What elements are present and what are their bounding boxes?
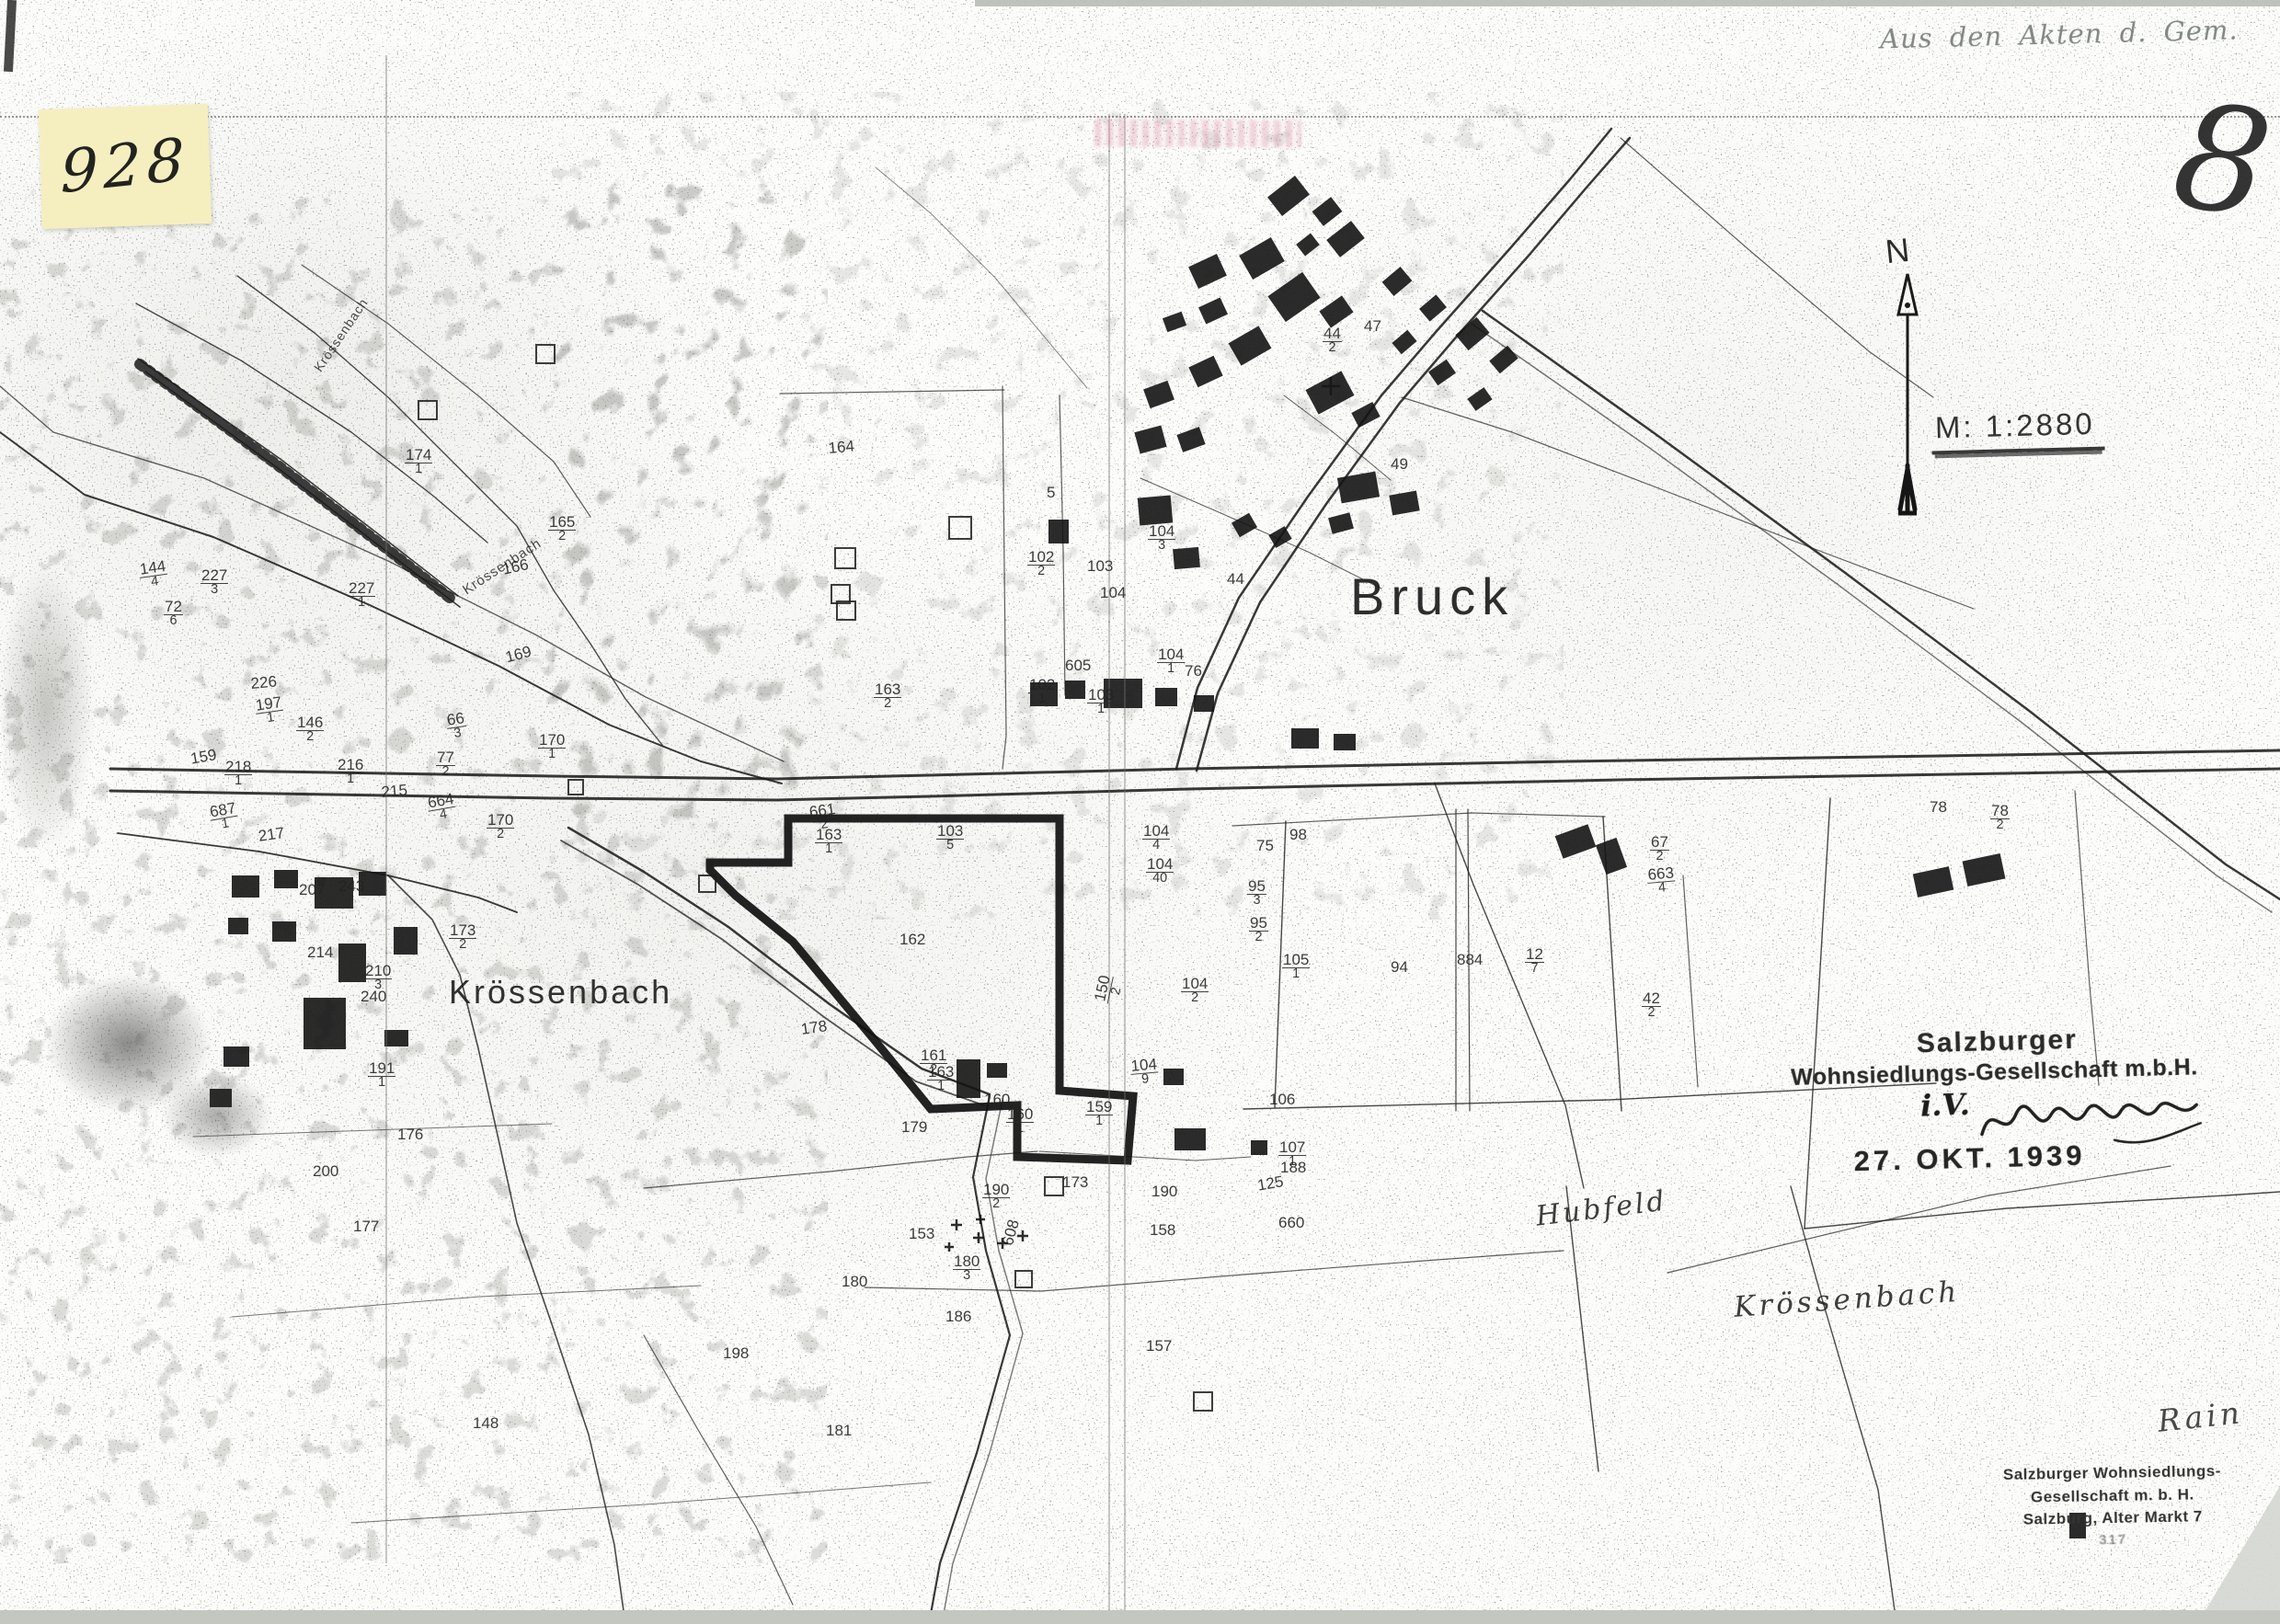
parcel-number: 1652 — [548, 515, 576, 543]
building-footprint — [274, 870, 298, 888]
parcel-number: 5 — [1047, 486, 1055, 500]
building-footprint — [1163, 1069, 1184, 1085]
parcel-number: 190 — [1151, 1184, 1177, 1199]
parcel-number: 1042 — [1181, 977, 1209, 1004]
place-label-kroessenbach-village: Krössenbach — [449, 973, 672, 1012]
building-footprint — [1155, 688, 1177, 706]
parcel-number: 1631 — [927, 1065, 955, 1092]
parcel-number: 215 — [381, 783, 408, 800]
parcel-number: 1702 — [487, 813, 514, 841]
parcel-number: 1803 — [953, 1254, 980, 1282]
parcel-number: 181 — [826, 1424, 852, 1438]
parcel-number: 6634 — [1646, 865, 1677, 895]
address-stamp: Salzburger Wohnsiedlungs- Gesellschaft m… — [1988, 1460, 2238, 1552]
parcel-number: 75 — [1256, 839, 1274, 853]
parcel-number: 422 — [1642, 991, 1661, 1019]
parcel-number: 1911 — [368, 1061, 395, 1089]
parcel-number: 1601 — [1006, 1107, 1034, 1135]
parcel-number: 10440 — [1146, 857, 1174, 885]
parcel-number: 1049 — [1129, 1057, 1160, 1086]
building-footprint — [1174, 1128, 1206, 1150]
parcel-number: 188 — [1280, 1161, 1306, 1175]
scanner-edge-strip-top — [975, 0, 2280, 6]
parcel-number: 1044 — [1142, 824, 1170, 852]
parcel-number: 47 — [1364, 319, 1381, 334]
parcel-number: 106 — [1269, 1092, 1295, 1107]
parcel-number: 103 — [1087, 559, 1113, 574]
parcel-number: 176 — [397, 1127, 423, 1142]
building-footprint — [1138, 495, 1173, 525]
parcel-number: 1741 — [405, 448, 432, 475]
parcel-number: 180 — [842, 1275, 867, 1289]
parcel-number: 1632 — [874, 682, 901, 710]
parcel-number: 104 — [1100, 586, 1126, 600]
parcel-number: 127 — [1525, 947, 1544, 975]
photocopy-smudge — [0, 515, 110, 901]
company-stamp: Salzburger Wohnsiedlungs-Gesellschaft m.… — [1790, 1021, 2207, 1180]
north-arrow-icon — [1876, 272, 1941, 539]
parcel-number: 94 — [1391, 960, 1408, 975]
scanner-edge-strip-bottom — [0, 1610, 2280, 1624]
parcel-number: 1022 — [1027, 550, 1055, 578]
parcel-number: 884 — [1457, 953, 1483, 967]
parcel-number: 1971 — [254, 695, 285, 726]
sticky-note: 928 — [39, 104, 212, 229]
parcel-number: 125 — [1256, 1174, 1285, 1193]
parcel-number: 952 — [1249, 916, 1268, 944]
parcel-number: 1444 — [138, 559, 169, 590]
parcel-number: 49 — [1391, 457, 1408, 472]
parcel-number: 6871 — [208, 801, 240, 833]
parcel-number: 1031 — [1087, 688, 1115, 715]
parcel-number: 148 — [473, 1416, 498, 1431]
parcel-number: 1732 — [449, 923, 476, 951]
address-stamp-line: Salzburger Wohnsiedlungs- — [1988, 1460, 2236, 1487]
parcel-number: 198 — [723, 1346, 749, 1361]
parcel-number: 78 — [1930, 800, 1947, 815]
map-scale-label: M: 1:2880 — [1931, 406, 2104, 455]
parcel-number: 214 — [307, 945, 333, 960]
paper-fold-line — [385, 55, 387, 1563]
parcel-number: 226 — [250, 675, 278, 692]
parcel-number: 1035 — [936, 824, 964, 852]
parcel-number: 200 — [313, 1164, 338, 1179]
parcel-number: 177 — [353, 1219, 379, 1234]
sticky-note-number: 928 — [61, 126, 189, 208]
parcel-number: 2271 — [348, 581, 375, 609]
building-footprint — [304, 998, 346, 1049]
place-label-bruck: Bruck — [1350, 566, 1514, 626]
parcel-number: 157 — [1146, 1339, 1172, 1354]
parcel-number: 672 — [1650, 835, 1669, 863]
parcel-number: 158 — [1150, 1223, 1175, 1238]
parcel-number: 772 — [436, 750, 455, 778]
parcel-number: 2161 — [337, 758, 364, 785]
parcel-number: 164 — [828, 440, 855, 456]
parcel-number: 217 — [258, 826, 285, 843]
parcel-number: 44 — [1227, 572, 1244, 587]
scan-dotted-fold-line — [0, 116, 2280, 118]
building-footprint — [1251, 1140, 1267, 1155]
parcel-number: 240 — [361, 989, 386, 1004]
paper-fold-line — [1108, 114, 1110, 1613]
parcel-number: 1631 — [815, 828, 842, 855]
parcel-number: 76 — [1185, 664, 1202, 679]
parcel-number: 1701 — [538, 733, 566, 761]
parcel-number: 159 — [189, 748, 218, 766]
parcel-number: 178 — [800, 1019, 828, 1036]
parcel-number: 2273 — [201, 568, 228, 596]
parcel-number: 153 — [909, 1227, 934, 1241]
parcel-number: 605 — [1065, 658, 1091, 673]
building-footprint — [1291, 728, 1319, 749]
parcel-number: 782 — [1990, 804, 2010, 831]
parcel-number: 179 — [901, 1120, 927, 1135]
parcel-number: 726 — [164, 600, 183, 627]
building-footprint — [1173, 547, 1200, 569]
parcel-number: 1043 — [1148, 524, 1175, 552]
parcel-number: 162 — [899, 932, 925, 947]
parcel-number: 660 — [1278, 1216, 1304, 1230]
building-footprint — [232, 875, 259, 898]
building-footprint — [228, 918, 248, 934]
building-footprint — [1194, 695, 1214, 712]
parcel-number: 1462 — [296, 715, 324, 743]
signature-prefix: i.V. — [1920, 1087, 1971, 1123]
building-footprint — [1065, 680, 1085, 699]
building-footprint — [987, 1063, 1007, 1078]
parcel-number: 1591 — [1085, 1100, 1113, 1127]
building-footprint — [1334, 734, 1356, 750]
parcel-number: 663 — [445, 711, 468, 741]
paper-fold-line — [1124, 114, 1126, 1613]
parcel-number: 173 — [1062, 1175, 1088, 1190]
parcel-number: 1902 — [982, 1183, 1010, 1210]
building-footprint — [272, 921, 296, 942]
building-footprint — [1048, 520, 1069, 543]
parcel-number: 1041 — [1157, 647, 1185, 675]
photocopy-smudge — [138, 1056, 294, 1175]
signature-row: i.V. — [1920, 1081, 2207, 1149]
parcel-number: 207 — [299, 883, 325, 898]
faint-pink-stamp — [1094, 119, 1301, 147]
parcel-number: 98 — [1289, 828, 1307, 842]
building-footprint — [394, 927, 418, 955]
parcel-number: 2181 — [224, 760, 252, 787]
parcel-number: 186 — [945, 1309, 971, 1324]
parcel-number: 1502 — [1093, 973, 1126, 1006]
parcel-number: 953 — [1247, 879, 1266, 907]
north-label: N — [1884, 231, 1911, 271]
building-footprint — [957, 1059, 980, 1098]
parcel-number: 1051 — [1282, 953, 1310, 980]
building-footprint — [338, 944, 366, 982]
building-footprint — [384, 1030, 408, 1046]
parcel-number: 6644 — [426, 792, 458, 824]
scanned-cadastral-map-page: 1444227372622711661692261971146215921812… — [0, 0, 2280, 1624]
parcel-number: 442 — [1323, 326, 1342, 354]
parcel-number: 1021 — [1028, 678, 1056, 705]
parcel-number: 243 — [338, 879, 364, 894]
